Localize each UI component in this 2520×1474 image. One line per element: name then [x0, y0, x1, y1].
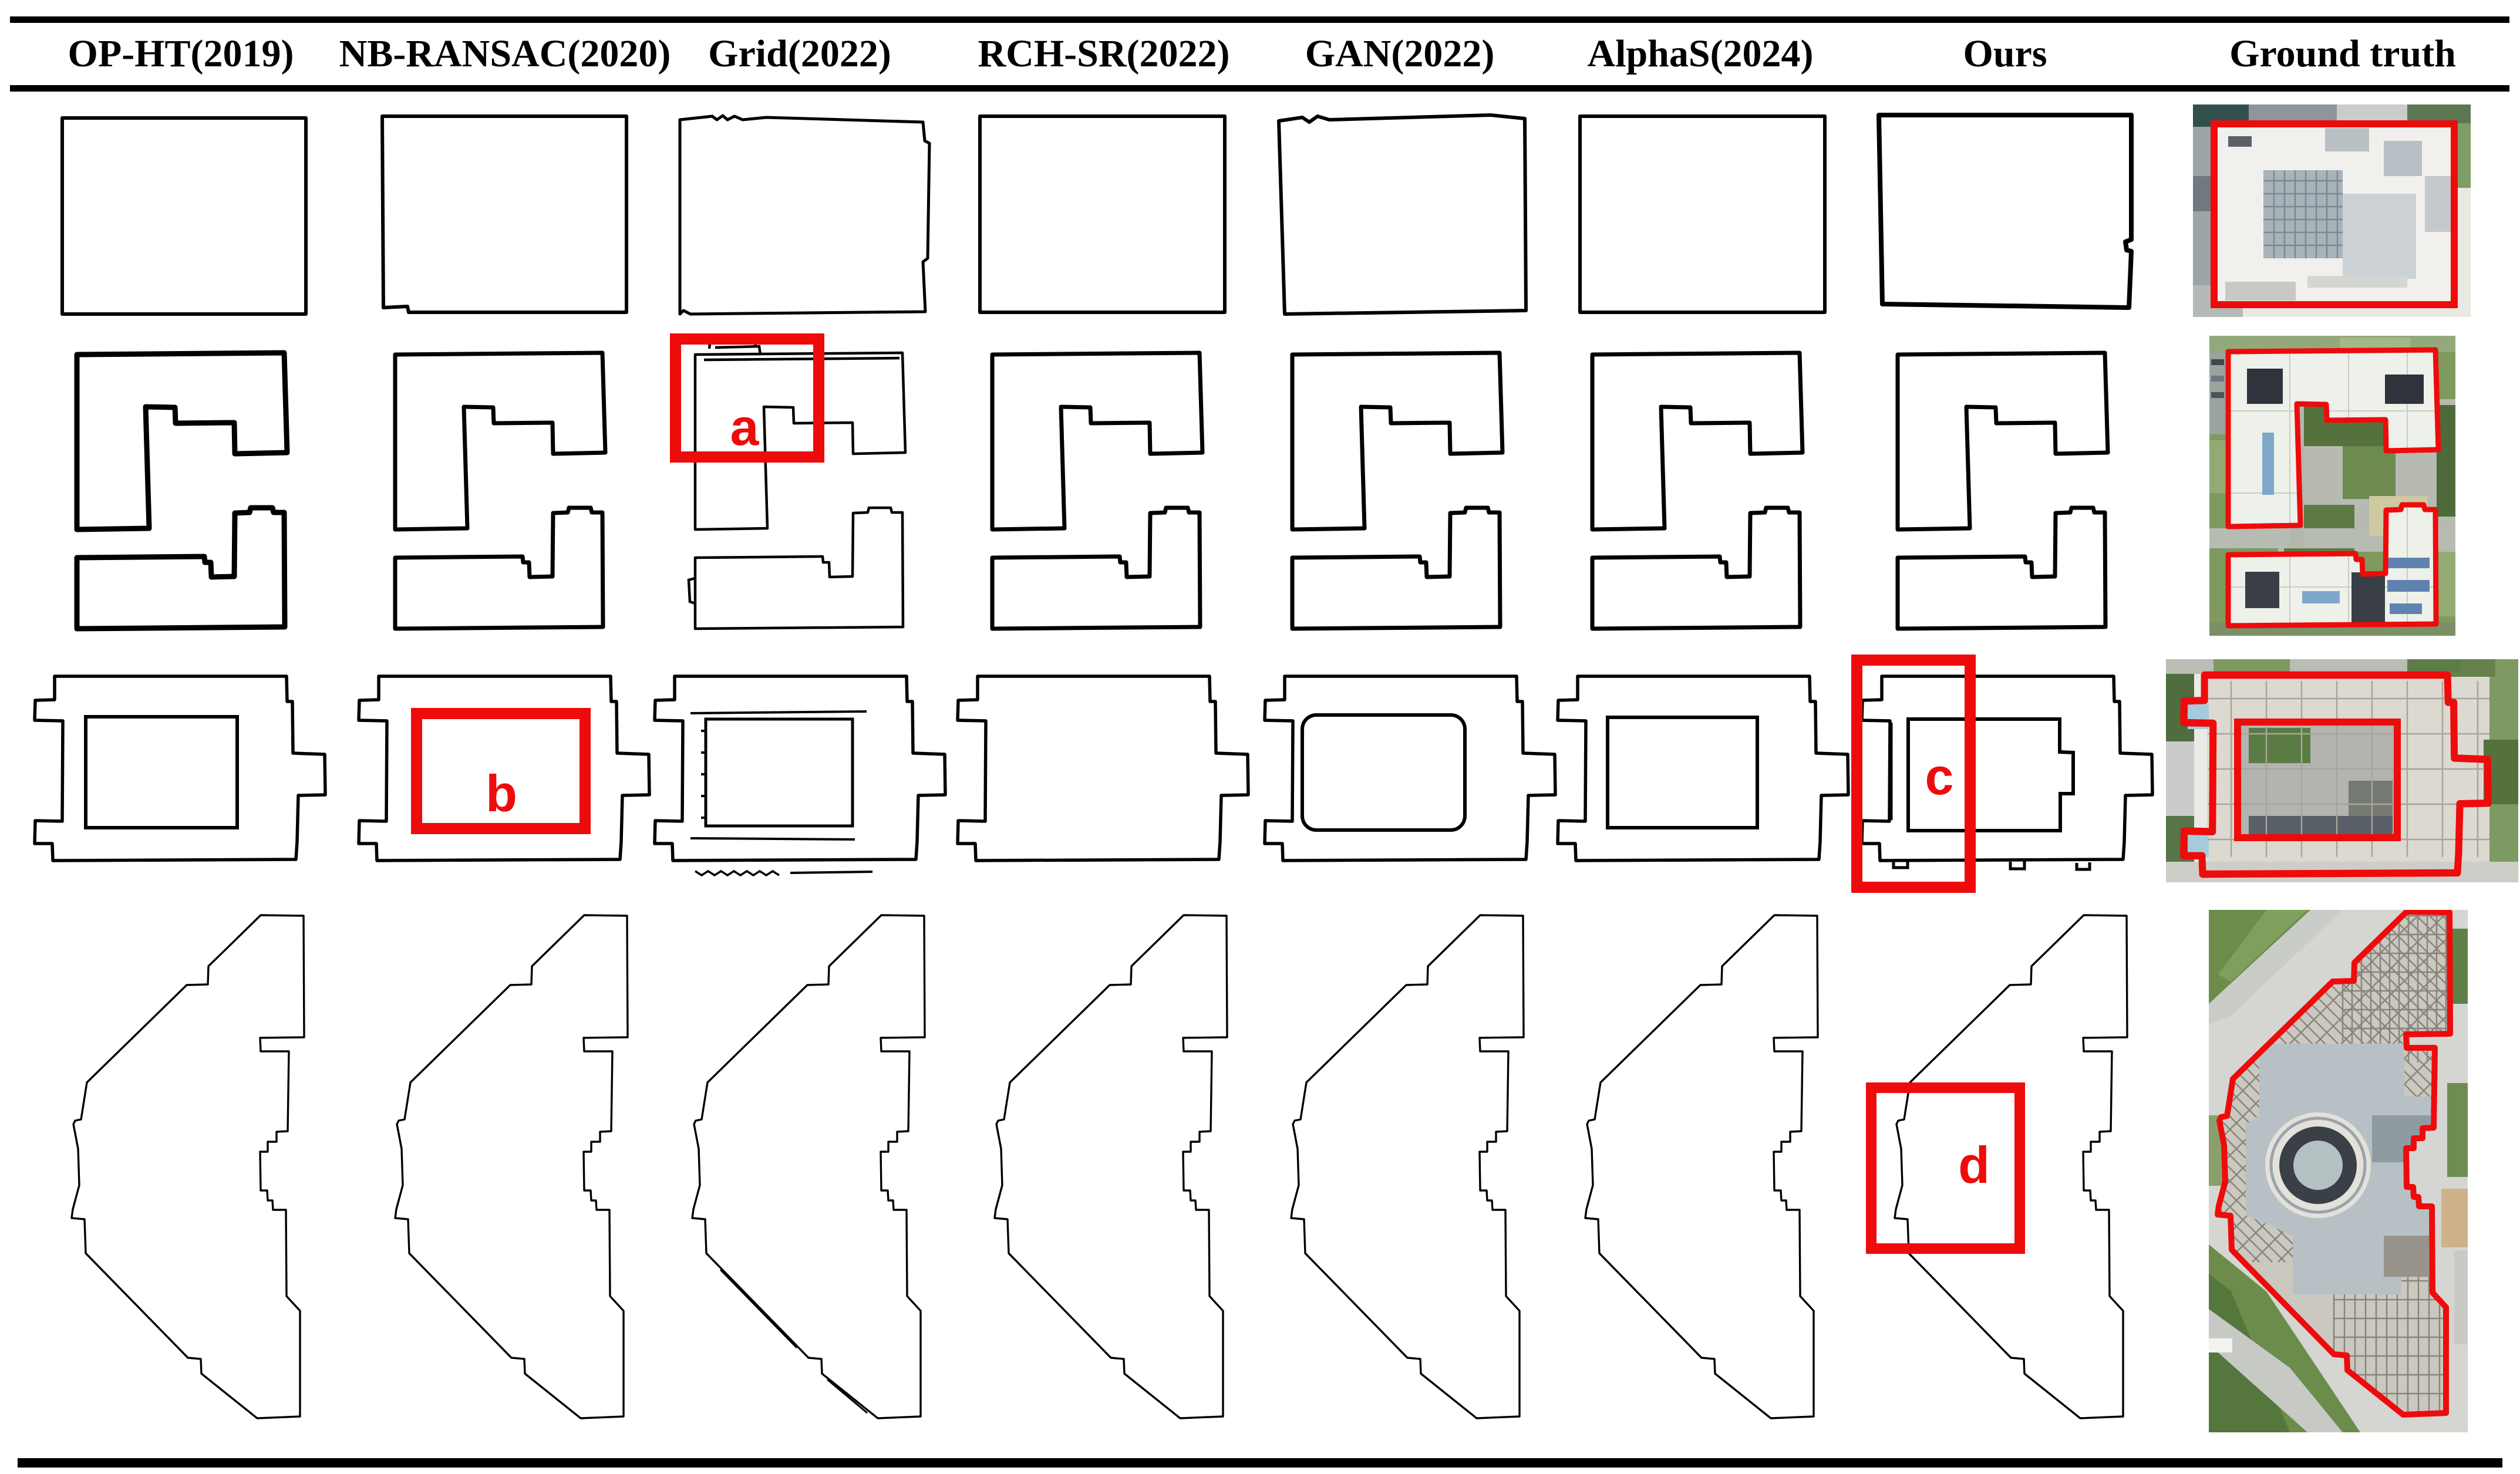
svg-text:AlphaS(2024): AlphaS(2024)	[1587, 32, 1813, 75]
svg-text:NB-RANSAC(2020): NB-RANSAC(2020)	[339, 32, 671, 75]
svg-text:Ours: Ours	[1963, 32, 2047, 75]
svg-text:b: b	[486, 764, 517, 822]
svg-text:Grid(2022): Grid(2022)	[708, 32, 891, 75]
svg-text:RCH-SR(2022): RCH-SR(2022)	[978, 32, 1230, 75]
svg-text:a: a	[730, 398, 760, 456]
svg-text:GAN(2022): GAN(2022)	[1305, 32, 1495, 75]
svg-text:OP-HT(2019): OP-HT(2019)	[68, 32, 294, 75]
svg-text:c: c	[1925, 747, 1954, 805]
svg-text:Ground truth: Ground truth	[2229, 32, 2456, 75]
svg-text:d: d	[1958, 1136, 1990, 1194]
